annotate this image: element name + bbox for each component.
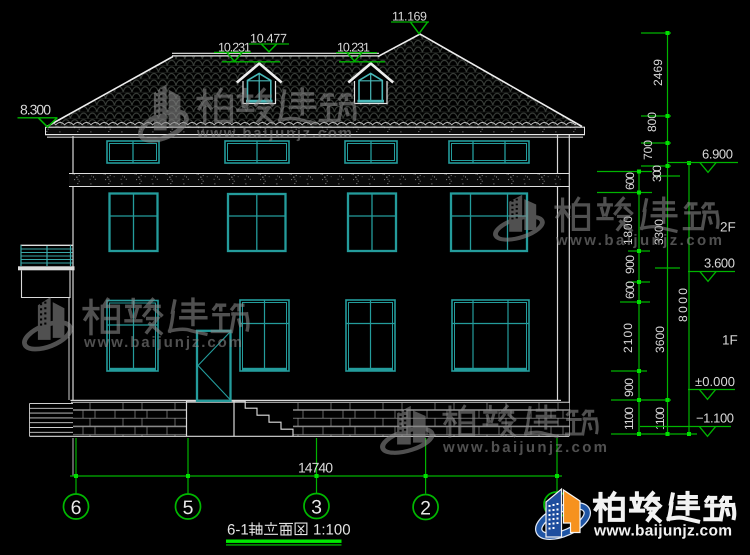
svg-text:6: 6 [71, 497, 82, 519]
svg-text:10.231: 10.231 [218, 41, 251, 55]
svg-text:900: 900 [622, 378, 636, 397]
svg-text:6-1: 6-1 [227, 522, 249, 539]
svg-text:2F: 2F [720, 220, 736, 235]
svg-text:−1.100: −1.100 [696, 411, 734, 426]
svg-text:600: 600 [623, 172, 637, 190]
svg-text:8.300: 8.300 [20, 102, 51, 118]
svg-text:10.477: 10.477 [250, 32, 287, 46]
svg-text:10.231: 10.231 [337, 41, 370, 55]
svg-text:11.169: 11.169 [392, 10, 427, 24]
svg-text:3: 3 [311, 497, 322, 519]
svg-text:300: 300 [650, 165, 664, 182]
svg-text:3600: 3600 [653, 326, 667, 353]
svg-text:6.900: 6.900 [702, 147, 733, 162]
svg-text:14740: 14740 [298, 460, 333, 476]
svg-text:900: 900 [623, 255, 637, 274]
svg-text:2469: 2469 [651, 59, 665, 86]
svg-text:5: 5 [183, 497, 194, 519]
svg-text:3.600: 3.600 [704, 256, 735, 271]
svg-text:1:100: 1:100 [313, 522, 351, 539]
svg-text:800: 800 [645, 112, 659, 132]
svg-text:±0.000: ±0.000 [695, 374, 735, 389]
svg-text:2100: 2100 [621, 323, 635, 353]
svg-text:1100: 1100 [622, 407, 636, 430]
svg-text:600: 600 [623, 281, 637, 299]
svg-text:1F: 1F [722, 333, 738, 348]
svg-text:2: 2 [420, 498, 431, 520]
svg-text:700: 700 [641, 140, 655, 160]
svg-text:www.baijunjz.com: www.baijunjz.com [593, 523, 732, 540]
